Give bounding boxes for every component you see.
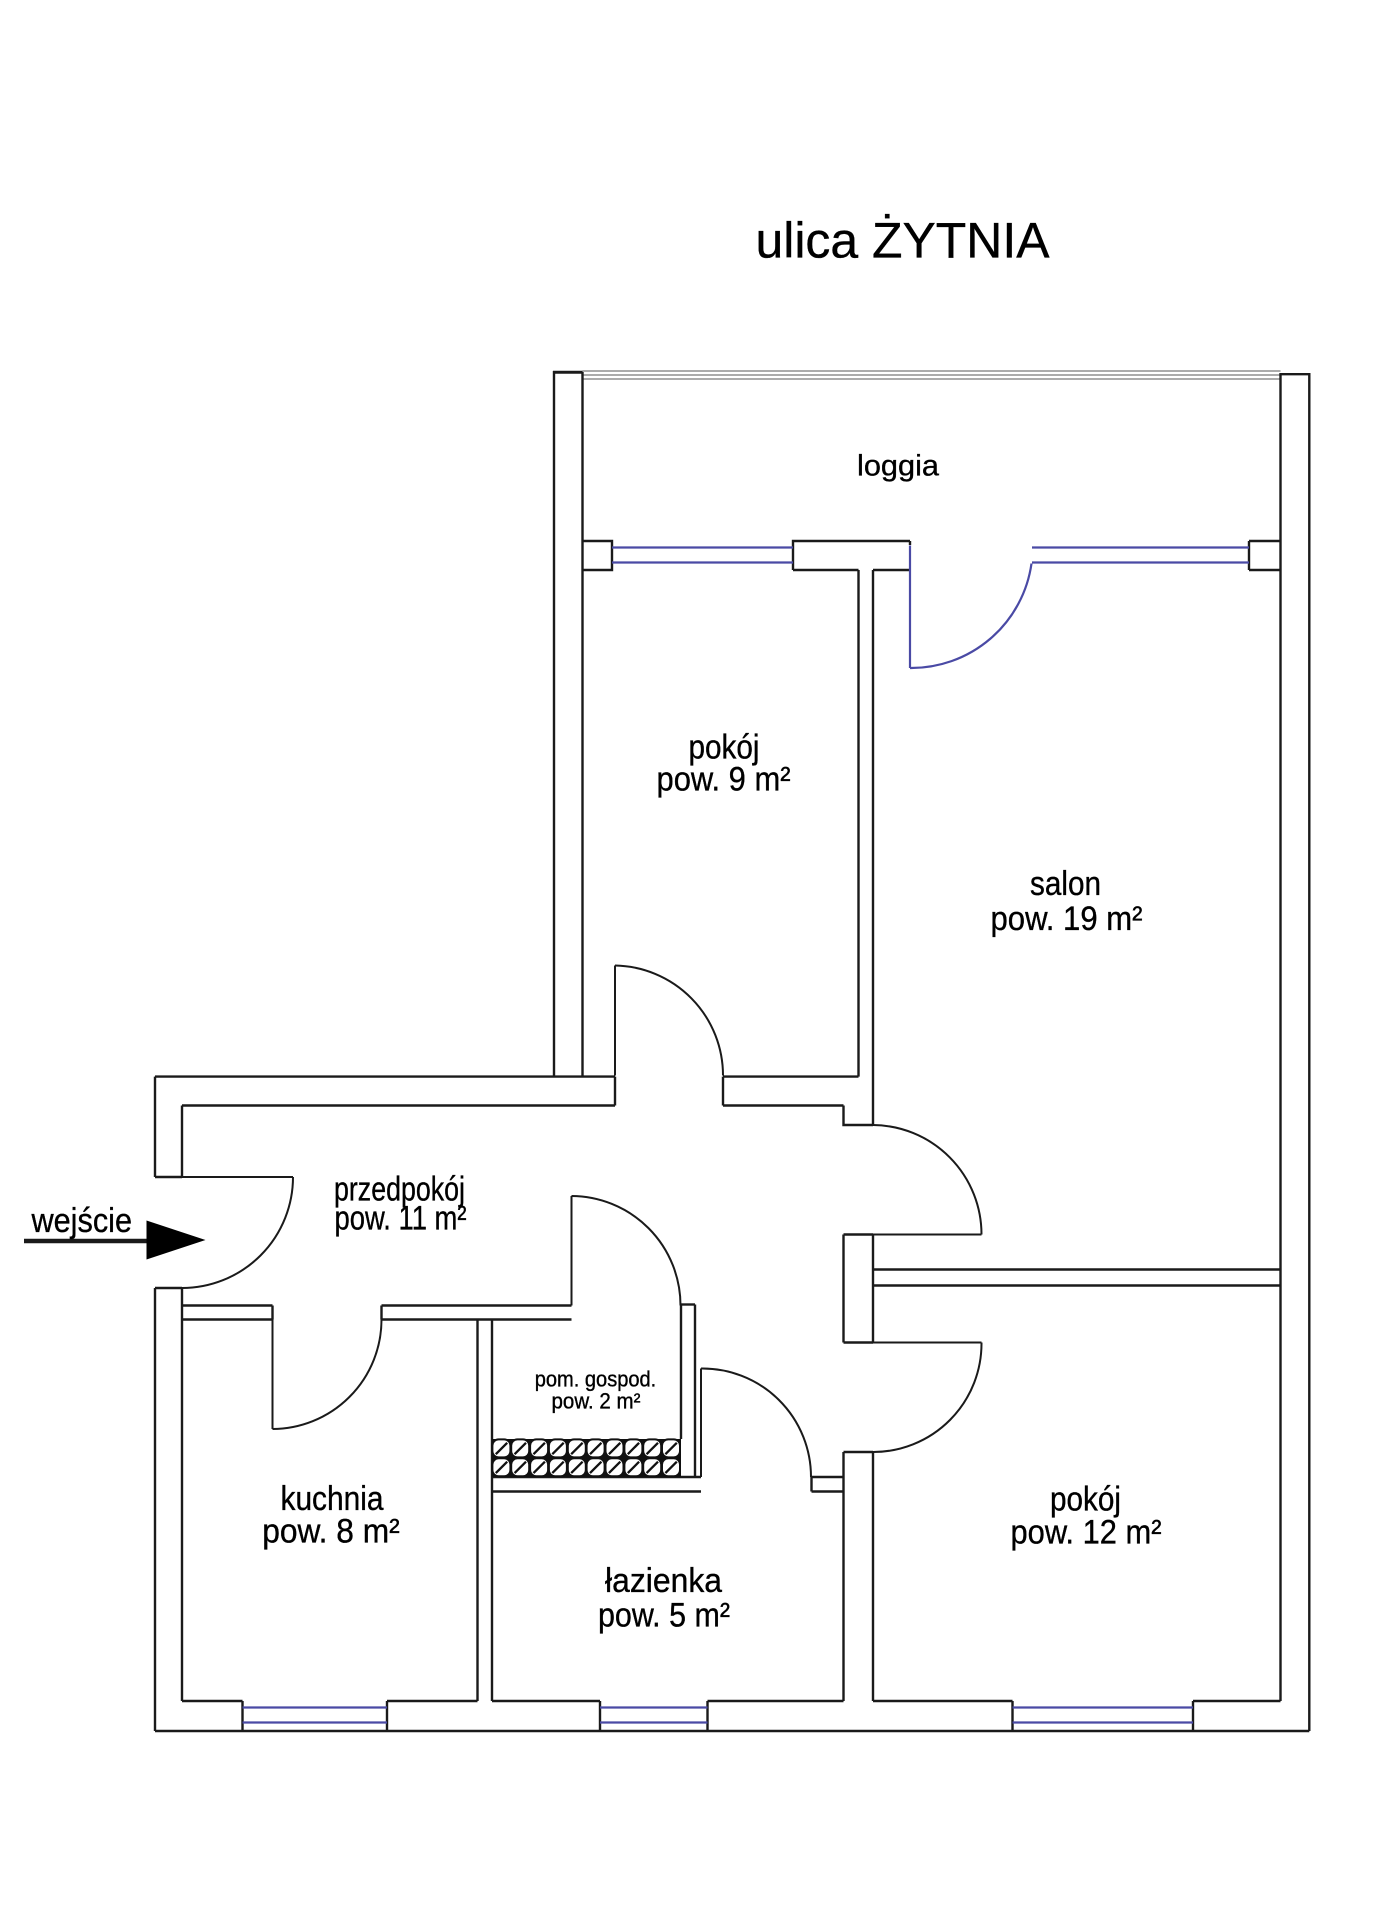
svg-text:pow. 2 m²: pow. 2 m²: [552, 1389, 641, 1414]
svg-text:wejście: wejście: [31, 1202, 132, 1240]
svg-text:pow. 8 m²: pow. 8 m²: [262, 1513, 400, 1551]
svg-text:ulica ŻYTNIA: ulica ŻYTNIA: [756, 213, 1051, 269]
svg-text:pow. 9 m²: pow. 9 m²: [657, 761, 791, 799]
svg-text:pow. 11 m²: pow. 11 m²: [335, 1200, 467, 1238]
svg-text:pow. 5 m²: pow. 5 m²: [598, 1597, 730, 1635]
svg-text:loggia: loggia: [857, 450, 939, 483]
svg-text:pow. 19 m²: pow. 19 m²: [991, 900, 1143, 938]
svg-text:salon: salon: [1030, 865, 1101, 903]
svg-text:pow. 12 m²: pow. 12 m²: [1011, 1514, 1162, 1552]
svg-text:łazienka: łazienka: [605, 1562, 722, 1600]
